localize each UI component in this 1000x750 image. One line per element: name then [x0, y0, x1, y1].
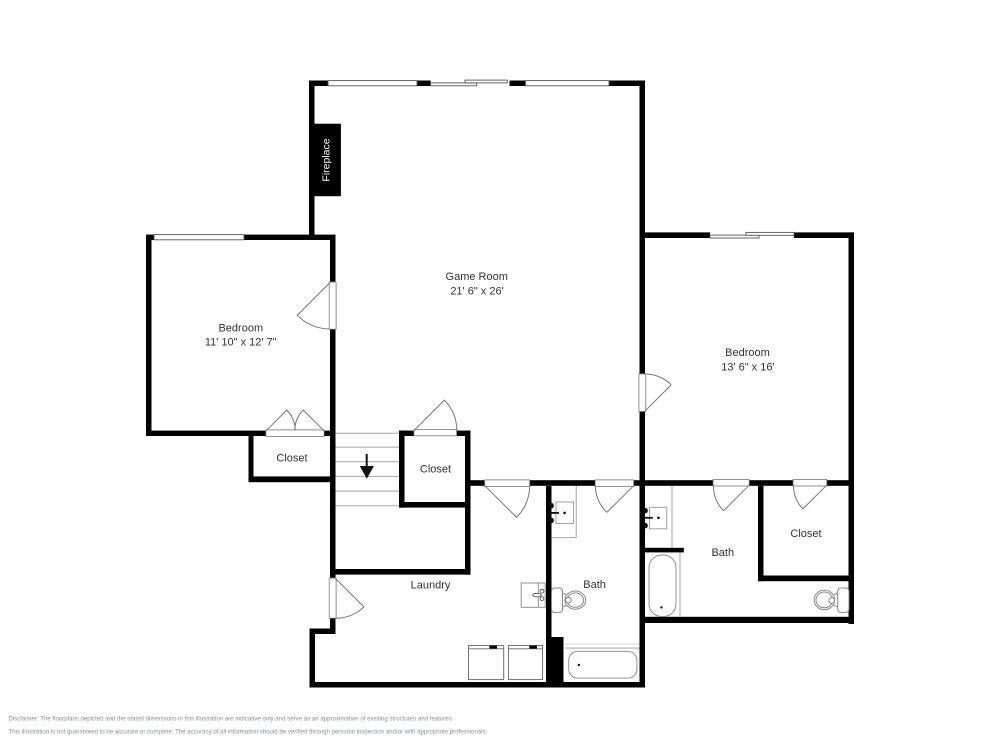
svg-text:Fireplace: Fireplace: [320, 138, 332, 181]
svg-text:Bath: Bath: [583, 579, 606, 591]
svg-text:21' 6" x 26': 21' 6" x 26': [450, 286, 503, 298]
svg-text:Disclaimer: The floorplans dep: Disclaimer: The floorplans depicted and …: [9, 716, 454, 723]
svg-text:Closet: Closet: [790, 528, 821, 540]
svg-text:Closet: Closet: [276, 453, 307, 465]
svg-text:Bath: Bath: [711, 547, 734, 559]
svg-text:Laundry: Laundry: [411, 580, 451, 592]
svg-text:Closet: Closet: [420, 464, 451, 476]
svg-text:This illustration is not guara: This illustration is not guaranteed to b…: [9, 729, 488, 736]
svg-text:13' 6" x 16': 13' 6" x 16': [721, 362, 774, 374]
svg-text:Bedroom: Bedroom: [218, 323, 263, 335]
svg-text:11' 10" x 12' 7": 11' 10" x 12' 7": [205, 337, 277, 349]
svg-text:Game Room: Game Room: [446, 271, 508, 283]
svg-text:Bedroom: Bedroom: [725, 347, 770, 359]
